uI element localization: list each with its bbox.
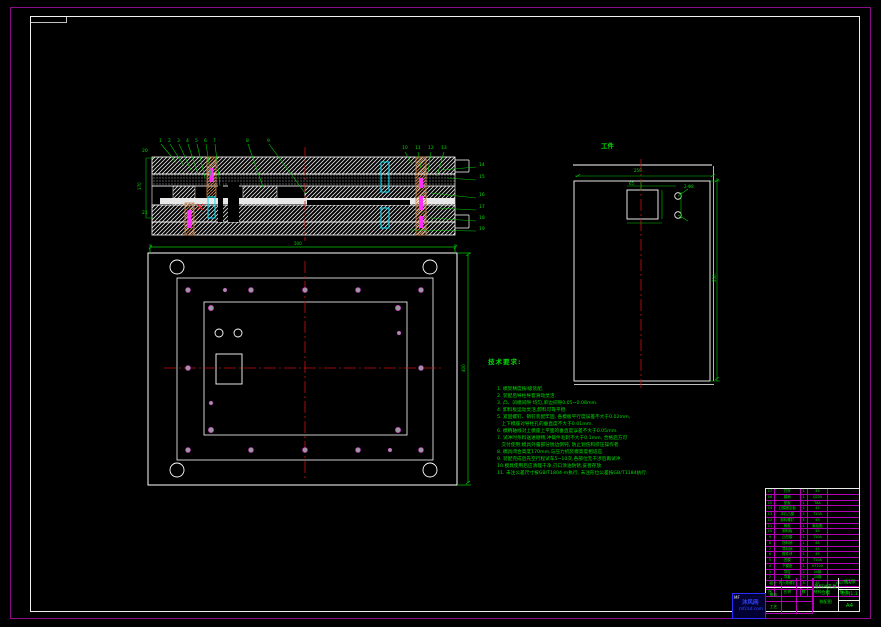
bom-cell: HT200 xyxy=(808,564,829,569)
title-block: 17打杆14516模柄1Q23515垫板1T8A14凸模固定板14513冲孔凸模… xyxy=(765,488,860,612)
signature-row: 设计 xyxy=(766,578,813,590)
dimension-label: 350 xyxy=(712,274,717,282)
note-line: 1. 模架精度按Ⅰ级装配. xyxy=(497,386,648,393)
dimension-label: 500 xyxy=(294,241,302,246)
bom-cell: T8A xyxy=(808,501,829,506)
dimension-label: 170 xyxy=(137,182,142,190)
bom-cell xyxy=(828,518,859,523)
item-number: 8 xyxy=(246,139,249,144)
bom-cell: 橡胶 xyxy=(775,524,801,529)
workpiece-view xyxy=(573,159,720,388)
bom-cell: 1 xyxy=(801,524,808,529)
item-number: 3 xyxy=(177,139,180,144)
note-line: 2. 装配后导柱导套滑动灵活. xyxy=(497,393,648,400)
bom-cell: 12 xyxy=(766,518,775,523)
bom-cell xyxy=(828,558,859,563)
item-number: 7 xyxy=(213,139,216,144)
item-number: 10 xyxy=(402,146,408,151)
bom-cell: 2 xyxy=(801,547,808,552)
note-line: 9. 装配完成后先空行程试车5~10次,各部位无干涉后再试冲. xyxy=(497,456,648,463)
workpiece-label: 工件 xyxy=(601,143,614,150)
bom-cell xyxy=(828,552,859,557)
bom-cell: T10A xyxy=(808,512,829,517)
bom-cell: 凸模固定板 xyxy=(775,506,801,511)
bom-cell xyxy=(828,529,859,534)
item-number: 6 xyxy=(204,139,207,144)
note-line: 6. 模柄轴线对上模座上平面的垂直度误差不大于0.05mm. xyxy=(497,428,648,435)
bom-cell: 14 xyxy=(766,506,775,511)
bom-cell: 2 xyxy=(801,512,808,517)
bom-cell: 1 xyxy=(801,529,808,534)
note-line: 11. 未注公差尺寸按GB/T1804-m执行, 未注形位公差按GB/T1184… xyxy=(497,470,648,477)
technical-requirements-list: 1. 模架精度按Ⅰ级装配.2. 装配后导柱导套滑动灵活.3. 凸、凹模间隙 均匀… xyxy=(497,386,648,477)
note-line: 3. 凸、凹模间隙 均匀,单边间隙0.05~0.08mm. xyxy=(497,400,648,407)
cad-drawing-sheet[interactable]: 技术要求: 1. 模架精度按Ⅰ级装配.2. 装配后导柱导套滑动灵活.3. 凸、凹… xyxy=(0,0,881,627)
bom-cell: 45 xyxy=(808,506,829,511)
bom-cell: 1 xyxy=(801,558,808,563)
bom-cell: 1 xyxy=(801,489,808,494)
item-number: 19 xyxy=(479,227,485,232)
bom-cell: 1 xyxy=(801,506,808,511)
bom-cell xyxy=(828,535,859,540)
dimension-label: 2-Φ8 xyxy=(684,184,694,189)
bom-cell: 45 xyxy=(808,552,829,557)
sheet-frame xyxy=(11,8,871,619)
bom-cell xyxy=(828,524,859,529)
scale-cell: 比例1:1 xyxy=(839,590,860,602)
bom-cell: 45 xyxy=(808,529,829,534)
workpiece-dimensions xyxy=(575,174,720,381)
bom-cell: 1 xyxy=(801,541,808,546)
signature-grid: 设计审核工艺 xyxy=(766,578,814,611)
item-number: 2 xyxy=(168,139,171,144)
note-line: 4. 卸料板运动灵活,卸料可靠平稳. xyxy=(497,407,648,414)
stamp-line2: mfcad.com xyxy=(739,607,763,612)
bom-cell: 2 xyxy=(801,570,808,575)
bom-cell: 9 xyxy=(766,535,775,540)
signature-row: 审核 xyxy=(766,590,813,602)
item-number: 12 xyxy=(428,146,434,151)
plan-view xyxy=(148,244,471,485)
bom-cell: 垫板 xyxy=(775,501,801,506)
bom-cell: T10A xyxy=(808,535,829,540)
note-line: 7. 试冲时条料送进顺畅,冲裁件毛刺不大于0.1mm, 合格后方可 xyxy=(497,435,648,442)
bom-cell xyxy=(828,501,859,506)
dimension-label: 65 xyxy=(629,181,634,186)
bom-cell: 45 xyxy=(808,541,829,546)
stamp-logo-icon: MF xyxy=(734,595,740,600)
bom-cell xyxy=(828,547,859,552)
note-line: 8. 模具闭合高度170mm,与压力机装模高度相适应. xyxy=(497,449,648,456)
bom-cell: 1 xyxy=(801,564,808,569)
item-number: 13 xyxy=(441,146,447,151)
bom-cell: 1 xyxy=(801,552,808,557)
paper-size-cell: A4 xyxy=(839,601,860,612)
signature-cell xyxy=(782,590,798,601)
item-number: 16 xyxy=(479,193,485,198)
signature-row: 工艺 xyxy=(766,602,813,614)
bom-cell: 15 xyxy=(766,501,775,506)
item-number: 9 xyxy=(267,139,270,144)
item-number: 20 xyxy=(142,149,148,154)
note-line: 10.模具使用后应清理干净,刃口涂油防锈,妥善存放. xyxy=(497,463,648,470)
bom-cell: 下模座 xyxy=(775,564,801,569)
watermark-stamp: MF 沐风网 mfcad.com xyxy=(732,593,766,619)
bom-cell: T10A xyxy=(808,558,829,563)
bom-cell: 1 xyxy=(801,535,808,540)
note-line: 5. 紧固螺钉、销钉装配牢固, 各模板平行度误差不大于0.02mm, xyxy=(497,414,648,421)
drawing-subtitle: 装配图 xyxy=(813,599,838,605)
signature-cell xyxy=(797,578,813,589)
bom-cell: 45 xyxy=(808,547,829,552)
bom-cell: 1 xyxy=(801,501,808,506)
signature-cell xyxy=(782,578,798,589)
item-number: 21 xyxy=(142,211,148,216)
bom-cell: 导柱 xyxy=(775,570,801,575)
bom-table: 17打杆14516模柄1Q23515垫板1T8A14凸模固定板14513冲孔凸模… xyxy=(766,489,859,587)
bom-cell xyxy=(828,570,859,575)
bom-cell: 卸料板 xyxy=(775,529,801,534)
bom-cell: 4 xyxy=(766,564,775,569)
bom-cell: 聚氨酯 xyxy=(808,524,829,529)
bom-cell: 20钢 xyxy=(808,570,829,575)
bom-cell: 13 xyxy=(766,512,775,517)
dimension-label: 400 xyxy=(461,364,466,372)
bom-cell: 推件块 xyxy=(775,552,801,557)
section-view xyxy=(146,144,476,241)
signature-cell xyxy=(797,602,813,613)
bom-cell: 6 xyxy=(766,552,775,557)
bom-cell xyxy=(828,564,859,569)
signature-cell: 工艺 xyxy=(766,602,782,613)
bom-cell: 45 xyxy=(808,518,829,523)
bom-cell: 16 xyxy=(766,495,775,500)
bom-cell: 5 xyxy=(766,558,775,563)
bom-cell xyxy=(828,489,859,494)
bom-cell: 3 xyxy=(766,570,775,575)
stamp-line1: 沐风网 xyxy=(742,598,759,606)
item-number: 14 xyxy=(479,163,485,168)
bom-cell: 11 xyxy=(766,524,775,529)
sheet-info-cells: 共1张 比例1:1 A4 xyxy=(838,578,860,611)
bom-cell: Q235 xyxy=(808,495,829,500)
signature-cell: 审核 xyxy=(766,590,782,601)
bom-cell xyxy=(828,495,859,500)
bom-cell: 凸凹模 xyxy=(775,535,801,540)
bom-cell: 导料销 xyxy=(775,547,801,552)
bom-cell: 4 xyxy=(801,518,808,523)
bom-cell xyxy=(828,506,859,511)
screw-holes xyxy=(186,288,424,453)
bom-cell: 1 xyxy=(801,495,808,500)
item-number: 15 xyxy=(479,175,485,180)
drawing-title-cell: 落料冲孔复合模 装配图 xyxy=(813,578,838,611)
bom-cell: 卸料螺钉 xyxy=(775,518,801,523)
technical-requirements-heading: 技术要求: xyxy=(488,359,522,366)
dimension-label: 250 xyxy=(634,168,642,173)
item-number: 4 xyxy=(186,139,189,144)
note-line: 交付使用;模具外露部分锐边倒钝, 防止划伤和挤压操作者. xyxy=(497,442,648,449)
bom-cell: 7 xyxy=(766,547,775,552)
signature-cell: 设计 xyxy=(766,578,782,589)
bom-cell: 8 xyxy=(766,541,775,546)
bom-cell: 打杆 xyxy=(775,489,801,494)
item-number: 18 xyxy=(479,216,485,221)
sheet-count-cell: 共1张 xyxy=(839,578,860,590)
bom-cell xyxy=(828,541,859,546)
signature-cell xyxy=(797,590,813,601)
bom-cell: 冲孔凸模 xyxy=(775,512,801,517)
bom-cell: 17 xyxy=(766,489,775,494)
bom-cell: 凹模 xyxy=(775,558,801,563)
item-number: 1 xyxy=(159,139,162,144)
title-block-lower: 设计审核工艺 落料冲孔复合模 装配图 共1张 比例1:1 A4 xyxy=(766,578,859,611)
bom-cell xyxy=(828,512,859,517)
item-number: 17 xyxy=(479,205,485,210)
signature-cell xyxy=(782,602,798,613)
bom-cell: 模柄 xyxy=(775,495,801,500)
item-number: 5 xyxy=(195,139,198,144)
bom-cell: 挡料销 xyxy=(775,541,801,546)
bom-cell: 10 xyxy=(766,529,775,534)
item-number: 11 xyxy=(415,146,421,151)
bom-cell: 45 xyxy=(808,489,829,494)
drawing-title: 落料冲孔复合模 xyxy=(813,584,838,596)
drawing-linework xyxy=(0,0,881,627)
note-line: 上下模座对导柱孔的垂直度不大于0.01mm. xyxy=(497,421,648,428)
